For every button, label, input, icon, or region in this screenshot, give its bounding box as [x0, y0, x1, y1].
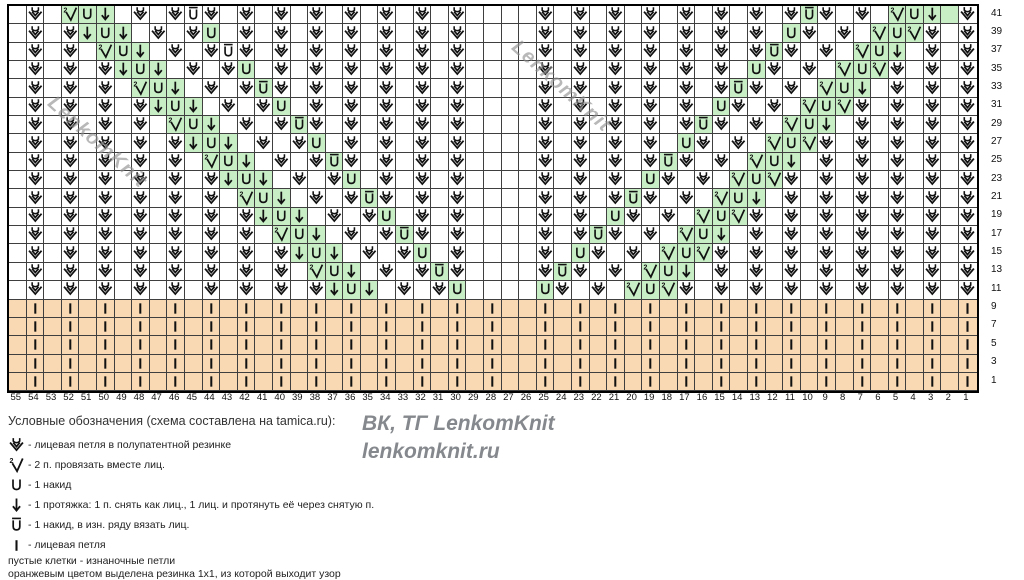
- column-number: 54: [25, 392, 43, 403]
- chart-cell: [255, 98, 273, 116]
- chart-cell: [115, 171, 133, 189]
- chart-cell: [203, 116, 221, 134]
- chart-cell: [220, 263, 238, 281]
- chart-cell: [414, 281, 432, 299]
- center-watermark: ВК, ТГ LenkomKnit lenkomknit.ru: [362, 410, 555, 467]
- chart-cell: [572, 61, 590, 79]
- chart-cell: [97, 79, 115, 97]
- chart-cell: [150, 98, 168, 116]
- chart-cell: [889, 24, 907, 42]
- chart-cell: [502, 116, 520, 134]
- chart-cell: [607, 244, 625, 262]
- column-number: 21: [605, 392, 623, 403]
- chart-cell: [748, 208, 766, 226]
- chart-cell: [748, 61, 766, 79]
- legend-items: - лицевая петля в полупатентной резинке2…: [8, 435, 374, 555]
- chart-cell: [220, 79, 238, 97]
- chart-cell: [449, 79, 467, 97]
- chart-cell: [783, 189, 801, 207]
- chart-cell: 2: [889, 6, 907, 24]
- chart-cell: [396, 244, 414, 262]
- chart-cell: [291, 208, 309, 226]
- chart-cell: [449, 318, 467, 336]
- chart-cell: [924, 244, 942, 262]
- chart-cell: [291, 134, 309, 152]
- chart-cell: [959, 244, 977, 262]
- chart-cell: [713, 300, 731, 318]
- chart-cell: 2: [836, 98, 854, 116]
- chart-cell: [414, 98, 432, 116]
- column-number: 4: [904, 392, 922, 403]
- chart-cell: [449, 300, 467, 318]
- chart-cell: [678, 318, 696, 336]
- chart-cell: [396, 98, 414, 116]
- chart-cell: [396, 6, 414, 24]
- chart-cell: [378, 318, 396, 336]
- row-number: 19: [991, 209, 1015, 220]
- chart-cell: [572, 153, 590, 171]
- chart-cell: [185, 134, 203, 152]
- chart-cell: [537, 98, 555, 116]
- chart-cell: [554, 61, 572, 79]
- chart-cell: [713, 263, 731, 281]
- chart-cell: [484, 208, 502, 226]
- chart-cell: [378, 281, 396, 299]
- chart-cell: [572, 263, 590, 281]
- chart-cell: 2: [871, 61, 889, 79]
- chart-cell: [150, 208, 168, 226]
- chart-cell: [414, 116, 432, 134]
- chart-cell: [854, 79, 872, 97]
- chart-cell: [590, 153, 608, 171]
- chart-cell: [660, 116, 678, 134]
- chart-cell: [572, 355, 590, 373]
- chart-cell: [343, 134, 361, 152]
- chart-cell: [766, 153, 784, 171]
- chart-cell: [713, 208, 731, 226]
- chart-cell: [449, 263, 467, 281]
- chart-cell: [449, 208, 467, 226]
- chart-cell: [150, 226, 168, 244]
- chart-cell: [361, 61, 379, 79]
- chart-cell: [79, 24, 97, 42]
- chart-cell: [695, 6, 713, 24]
- chart-cell: [730, 61, 748, 79]
- column-number: 18: [658, 392, 676, 403]
- chart-cell: [854, 263, 872, 281]
- chart-cell: [678, 98, 696, 116]
- chart-cell: [308, 171, 326, 189]
- chart-cell: [62, 355, 80, 373]
- chart-cell: [238, 300, 256, 318]
- chart-cell: [44, 6, 62, 24]
- chart-cell: [220, 336, 238, 354]
- chart-cell: [203, 171, 221, 189]
- chart-cell: [713, 153, 731, 171]
- chart-cell: [62, 43, 80, 61]
- chart-cell: [554, 6, 572, 24]
- chart-cell: [27, 318, 45, 336]
- chart-cell: [167, 24, 185, 42]
- chart-cell: [537, 244, 555, 262]
- column-number: 27: [500, 392, 518, 403]
- chart-cell: [695, 336, 713, 354]
- chart-cell: [924, 318, 942, 336]
- chart-cell: [378, 6, 396, 24]
- chart-cell: 2: [660, 244, 678, 262]
- chart-cell: [185, 98, 203, 116]
- chart-cell: [730, 336, 748, 354]
- chart-cell: [308, 281, 326, 299]
- chart-cell: [502, 153, 520, 171]
- chart-cell: [273, 61, 291, 79]
- chart-cell: [537, 355, 555, 373]
- chart-cell: [343, 189, 361, 207]
- chart-cell: [906, 43, 924, 61]
- chart-cell: [642, 61, 660, 79]
- chart-cell: [889, 189, 907, 207]
- chart-cell: [854, 226, 872, 244]
- chart-cell: [924, 226, 942, 244]
- chart-cell: [854, 244, 872, 262]
- chart-cell: [924, 355, 942, 373]
- chart-cell: [484, 153, 502, 171]
- chart-cell: [343, 336, 361, 354]
- chart-cell: [361, 116, 379, 134]
- chart-cell: [871, 244, 889, 262]
- chart-cell: [27, 171, 45, 189]
- chart-cell: [466, 98, 484, 116]
- chart-cell: [959, 300, 977, 318]
- chart-cell: 2: [713, 189, 731, 207]
- chart-cell: [79, 189, 97, 207]
- chart-cell: [79, 355, 97, 373]
- column-number: 50: [95, 392, 113, 403]
- chart-cell: [818, 61, 836, 79]
- legend: Условные обозначения (схема составлена н…: [8, 414, 374, 580]
- chart-cell: [801, 171, 819, 189]
- chart-cell: [62, 281, 80, 299]
- chart-cell: [466, 6, 484, 24]
- chart-cell: [79, 43, 97, 61]
- chart-cell: [431, 116, 449, 134]
- chart-cell: [326, 6, 344, 24]
- chart-cell: [519, 226, 537, 244]
- chart-cell: [466, 226, 484, 244]
- chart-cell: [906, 336, 924, 354]
- chart-cell: [836, 153, 854, 171]
- chart-cell: [150, 336, 168, 354]
- chart-cell: [572, 226, 590, 244]
- chart-cell: [572, 281, 590, 299]
- chart-cell: [713, 336, 731, 354]
- chart-cell: [414, 189, 432, 207]
- chart-cell: [502, 373, 520, 391]
- column-number: 40: [271, 392, 289, 403]
- chart-cell: [730, 116, 748, 134]
- row-number: 7: [991, 319, 1015, 330]
- chart-cell: [431, 300, 449, 318]
- chart-cell: [537, 6, 555, 24]
- chart-cell: [273, 79, 291, 97]
- chart-cell: [378, 134, 396, 152]
- chart-cell: [326, 98, 344, 116]
- chart-cell: 2: [818, 79, 836, 97]
- chart-cell: [466, 355, 484, 373]
- chart-cell: [695, 263, 713, 281]
- chart-cell: [941, 300, 959, 318]
- chart-cell: [62, 208, 80, 226]
- chart-cell: [220, 171, 238, 189]
- chart-cell: [273, 6, 291, 24]
- chart-cell: [220, 300, 238, 318]
- chart-cell: [906, 6, 924, 24]
- chart-cell: [414, 300, 432, 318]
- chart-cell: [238, 153, 256, 171]
- chart-cell: [590, 244, 608, 262]
- chart-cell: [871, 263, 889, 281]
- chart-cell: [554, 171, 572, 189]
- chart-cell: [713, 116, 731, 134]
- row-number: 3: [991, 356, 1015, 367]
- chart-cell: [255, 336, 273, 354]
- chart-cell: [431, 98, 449, 116]
- chart-cell: [766, 300, 784, 318]
- chart-cell: [713, 134, 731, 152]
- chart-cell: [449, 98, 467, 116]
- chart-cell: [97, 189, 115, 207]
- chart-cell: [484, 318, 502, 336]
- chart-cell: [889, 98, 907, 116]
- chart-cell: [607, 355, 625, 373]
- chart-cell: [906, 281, 924, 299]
- chart-cell: [695, 171, 713, 189]
- chart-cell: [783, 355, 801, 373]
- chart-cell: [572, 336, 590, 354]
- chart-cell: [537, 226, 555, 244]
- chart-cell: [572, 318, 590, 336]
- chart-cell: [466, 153, 484, 171]
- chart-cell: [836, 208, 854, 226]
- knitting-chart-grid: 2: [7, 4, 979, 393]
- chart-cell: [132, 171, 150, 189]
- chart-cell: [783, 153, 801, 171]
- chart-cell: [343, 373, 361, 391]
- chart-cell: [590, 373, 608, 391]
- chart-cell: [818, 24, 836, 42]
- chart-cell: [326, 226, 344, 244]
- chart-cell: [378, 189, 396, 207]
- column-number: 24: [552, 392, 570, 403]
- column-number: 39: [289, 392, 307, 403]
- chart-cell: [695, 134, 713, 152]
- chart-cell: [396, 355, 414, 373]
- chart-cell: [572, 24, 590, 42]
- chart-cell: [97, 263, 115, 281]
- chart-cell: [537, 373, 555, 391]
- chart-cell: [889, 79, 907, 97]
- chart-cell: [766, 43, 784, 61]
- chart-cell: [730, 43, 748, 61]
- chart-cell: [326, 318, 344, 336]
- chart-cell: [766, 355, 784, 373]
- chart-cell: [678, 43, 696, 61]
- chart-cell: [818, 43, 836, 61]
- chart-cell: [97, 24, 115, 42]
- chart-cell: [378, 98, 396, 116]
- chart-cell: [466, 43, 484, 61]
- chart-cell: [678, 61, 696, 79]
- chart-cell: [414, 24, 432, 42]
- chart-cell: [273, 189, 291, 207]
- chart-cell: [361, 6, 379, 24]
- chart-cell: [783, 263, 801, 281]
- chart-cell: [625, 226, 643, 244]
- chart-cell: [185, 300, 203, 318]
- chart-cell: [273, 263, 291, 281]
- chart-cell: [9, 373, 27, 391]
- chart-cell: [889, 171, 907, 189]
- chart-cell: [889, 134, 907, 152]
- chart-cell: [27, 226, 45, 244]
- chart-cell: [695, 98, 713, 116]
- chart-cell: [396, 171, 414, 189]
- chart-cell: [62, 61, 80, 79]
- chart-cell: [185, 171, 203, 189]
- chart-cell: [554, 79, 572, 97]
- chart-cell: [449, 373, 467, 391]
- chart-cell: [203, 226, 221, 244]
- chart-cell: [678, 116, 696, 134]
- chart-cell: [959, 171, 977, 189]
- chart-cell: [502, 336, 520, 354]
- chart-cell: [449, 281, 467, 299]
- chart-cell: [484, 98, 502, 116]
- chart-cell: [449, 336, 467, 354]
- chart-cell: [906, 355, 924, 373]
- chart-cell: [484, 189, 502, 207]
- chart-cell: [502, 355, 520, 373]
- chart-cell: [519, 43, 537, 61]
- chart-cell: [607, 98, 625, 116]
- chart-cell: [660, 61, 678, 79]
- chart-cell: [378, 61, 396, 79]
- chart-cell: [185, 336, 203, 354]
- chart-cell: [396, 61, 414, 79]
- chart-cell: [766, 98, 784, 116]
- chart-cell: [27, 208, 45, 226]
- chart-cell: [27, 281, 45, 299]
- chart-cell: [361, 355, 379, 373]
- chart-cell: [449, 171, 467, 189]
- chart-cell: [660, 300, 678, 318]
- chart-cell: [502, 98, 520, 116]
- row-number: 9: [991, 301, 1015, 312]
- chart-cell: [590, 98, 608, 116]
- chart-cell: [185, 318, 203, 336]
- chart-cell: [906, 79, 924, 97]
- chart-cell: [238, 373, 256, 391]
- chart-cell: [783, 6, 801, 24]
- chart-cell: [203, 373, 221, 391]
- chart-cell: [132, 244, 150, 262]
- chart-cell: [590, 226, 608, 244]
- chart-cell: [554, 189, 572, 207]
- chart-cell: [132, 116, 150, 134]
- chart-cell: [502, 43, 520, 61]
- column-number: 23: [570, 392, 588, 403]
- chart-cell: [361, 24, 379, 42]
- chart-cell: [766, 281, 784, 299]
- chart-cell: [273, 24, 291, 42]
- chart-cell: [326, 153, 344, 171]
- chart-cell: [255, 208, 273, 226]
- chart-cell: [238, 61, 256, 79]
- chart-cell: [79, 116, 97, 134]
- chart-cell: [273, 373, 291, 391]
- chart-cell: [9, 244, 27, 262]
- chart-cell: [203, 336, 221, 354]
- chart-cell: [414, 171, 432, 189]
- chart-cell: [801, 226, 819, 244]
- chart-cell: [766, 208, 784, 226]
- chart-cell: [79, 281, 97, 299]
- chart-cell: [519, 134, 537, 152]
- chart-cell: [132, 208, 150, 226]
- chart-cell: [27, 6, 45, 24]
- chart-cell: [150, 6, 168, 24]
- chart-cell: [273, 153, 291, 171]
- chart-cell: [730, 373, 748, 391]
- chart-cell: [361, 153, 379, 171]
- chart-cell: [625, 6, 643, 24]
- row-number: 21: [991, 191, 1015, 202]
- chart-cell: [713, 318, 731, 336]
- chart-cell: [519, 373, 537, 391]
- chart-cell: [255, 189, 273, 207]
- chart-cell: 2: [625, 281, 643, 299]
- chart-cell: [255, 43, 273, 61]
- chart-cell: [326, 24, 344, 42]
- chart-cell: [238, 43, 256, 61]
- chart-cell: [97, 244, 115, 262]
- chart-cell: [378, 226, 396, 244]
- chart-cell: [660, 373, 678, 391]
- chart-cell: [818, 189, 836, 207]
- chart-cell: [97, 208, 115, 226]
- chart-cell: [537, 263, 555, 281]
- chart-cell: [291, 24, 309, 42]
- chart-cell: [220, 24, 238, 42]
- chart-cell: [836, 171, 854, 189]
- chart-cell: [115, 43, 133, 61]
- chart-cell: [554, 226, 572, 244]
- legend-note-orange: оранжевым цветом выделена резинка 1х1, и…: [8, 568, 374, 580]
- chart-cell: 2: [97, 43, 115, 61]
- chart-cell: [449, 189, 467, 207]
- chart-cell: [871, 6, 889, 24]
- chart-cell: [625, 24, 643, 42]
- chart-cell: [836, 281, 854, 299]
- chart-cell: [326, 373, 344, 391]
- legend-item: - лицевая петля в полупатентной резинке: [8, 435, 374, 455]
- chart-cell: 2: [132, 79, 150, 97]
- chart-cell: [783, 373, 801, 391]
- chart-cell: [466, 171, 484, 189]
- chart-cell: [941, 263, 959, 281]
- chart-cell: [519, 189, 537, 207]
- chart-cell: [959, 263, 977, 281]
